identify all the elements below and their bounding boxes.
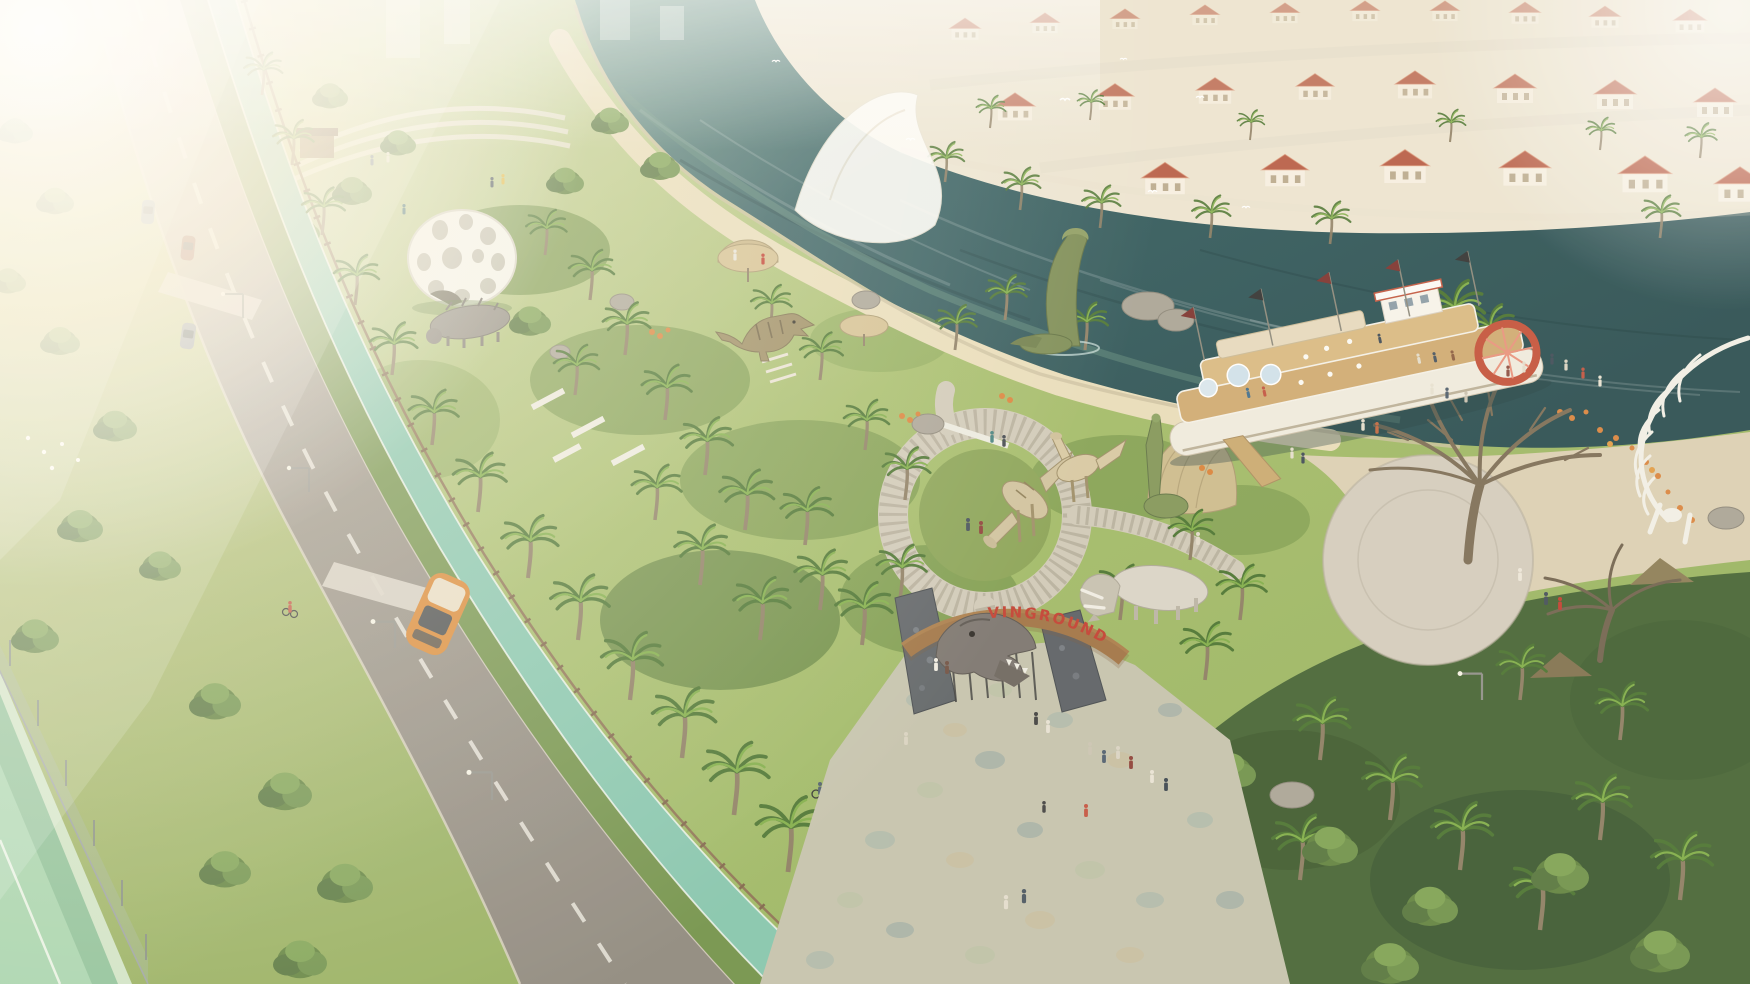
scene-canvas: Aerial rendering of a riverside dinosaur…: [0, 0, 1750, 984]
sun-bloom: [0, 0, 1750, 984]
aerial-render: Aerial rendering of a riverside dinosaur…: [0, 0, 1750, 984]
